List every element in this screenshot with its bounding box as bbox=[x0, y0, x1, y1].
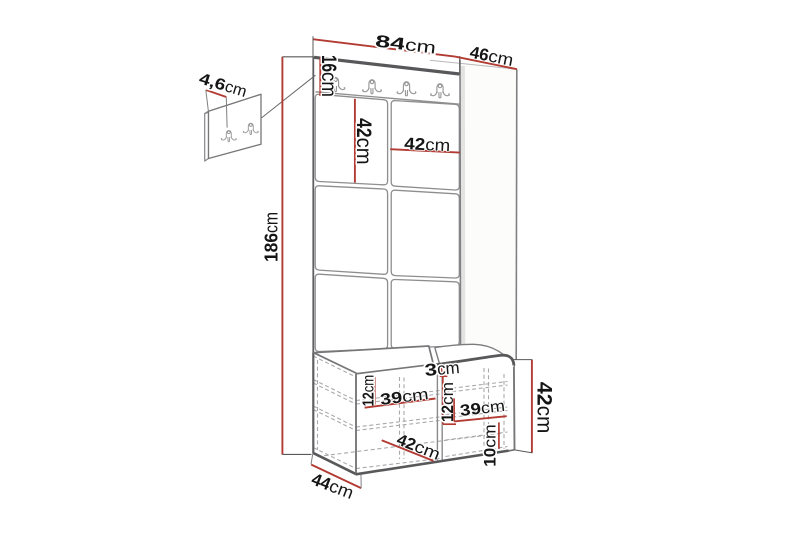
svg-text:42cm: 42cm bbox=[533, 382, 556, 434]
svg-text:42cm: 42cm bbox=[404, 134, 451, 155]
svg-text:186cm: 186cm bbox=[261, 212, 282, 262]
svg-text:12cm: 12cm bbox=[361, 375, 378, 407]
svg-text:10cm: 10cm bbox=[482, 424, 500, 467]
svg-text:16cm: 16cm bbox=[317, 55, 341, 97]
svg-text:42cm: 42cm bbox=[352, 118, 376, 165]
